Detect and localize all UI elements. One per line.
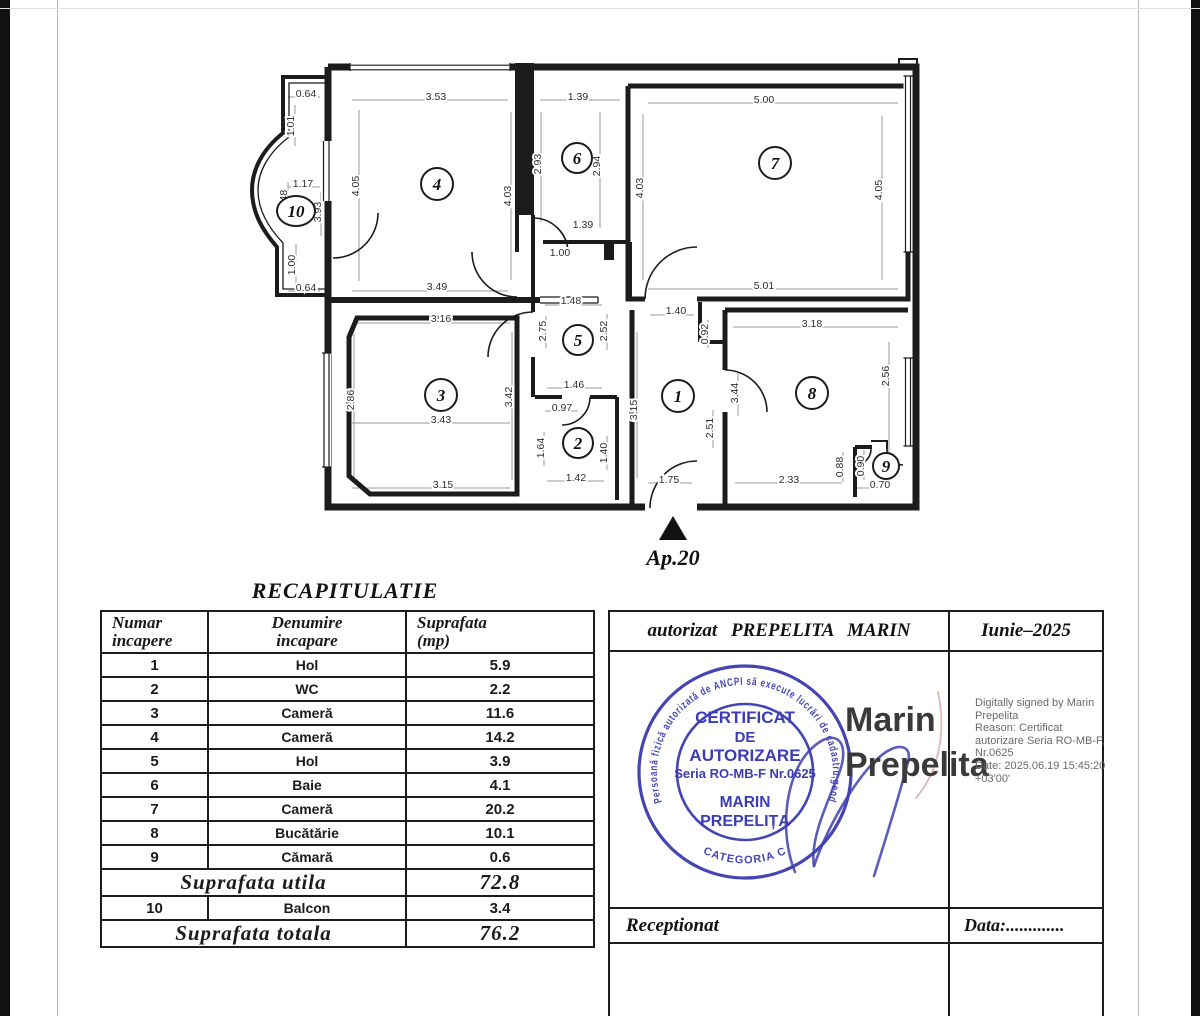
table-cell: 0.6 xyxy=(406,845,594,869)
recap-row: 4Cameră14.2 xyxy=(101,725,594,749)
room9-box xyxy=(871,441,887,449)
table-cell: Hol xyxy=(208,653,406,677)
dimension-label: 2.93 xyxy=(532,154,544,175)
dimension-label: 0.90 xyxy=(855,456,867,477)
date-header: Iunie–2025 xyxy=(950,612,1102,650)
table-cell: 2 xyxy=(101,677,208,701)
summary-value: 76.2 xyxy=(406,920,594,947)
dimension-label: 3.18 xyxy=(802,318,823,330)
recap-table: Numarincapere Denumireincapare Suprafata… xyxy=(100,610,595,948)
floor-plan: 0.641.011.171.483.931.000.643.534.054.03… xyxy=(250,56,925,586)
column-divider xyxy=(948,612,950,1016)
recap-row: 1Hol5.9 xyxy=(101,653,594,677)
suprafata-totala-row: Suprafata totala76.2 xyxy=(101,920,594,947)
table-cell: Bucătărie xyxy=(208,821,406,845)
dimension-label: 0.88 xyxy=(834,457,846,478)
recap-row: 9Cămară0.6 xyxy=(101,845,594,869)
table-cell: 8 xyxy=(101,821,208,845)
dimension-label: 3.49 xyxy=(427,281,448,293)
dimension-label: 2.33 xyxy=(779,474,800,486)
dimension-label: 3.43 xyxy=(431,414,452,426)
dimension-label: 2.86 xyxy=(345,390,357,411)
suprafata-utila-row: Suprafata utila72.8 xyxy=(101,869,594,896)
receptionat-label: Receptionat xyxy=(610,909,964,942)
page-border-top xyxy=(0,8,1200,9)
table-cell: 5 xyxy=(101,749,208,773)
col-header-numar: Numarincapere xyxy=(101,611,208,653)
table-cell: 14.2 xyxy=(406,725,594,749)
table-cell: 4 xyxy=(101,725,208,749)
dimension-label: 1.17 xyxy=(293,178,314,190)
room-number-9: 9 xyxy=(882,457,891,476)
door-arc-room7 xyxy=(645,247,697,299)
room-number-4: 4 xyxy=(432,175,442,194)
dimension-label: 4.03 xyxy=(502,186,514,207)
data-label: Data:............. xyxy=(950,909,1116,942)
recap-table-wrap: Numarincapere Denumireincapare Suprafata… xyxy=(100,610,593,948)
table-cell: Cameră xyxy=(208,725,406,749)
table-cell: 6 xyxy=(101,773,208,797)
window-room3-left xyxy=(322,353,331,467)
table-cell: 3 xyxy=(101,701,208,725)
scan-edge-left xyxy=(0,0,10,1016)
window-room4-top xyxy=(350,63,510,71)
divider xyxy=(610,942,1102,944)
summary-label: Suprafata totala xyxy=(101,920,406,947)
table-cell: Cămară xyxy=(208,845,406,869)
recap-row: 7Cameră20.2 xyxy=(101,797,594,821)
recap-row: 8Bucătărie10.1 xyxy=(101,821,594,845)
dimension-label: 5.00 xyxy=(754,94,775,106)
dimension-label: 1.48 xyxy=(561,295,582,307)
table-cell: 9 xyxy=(101,845,208,869)
door-arc-room4 xyxy=(472,252,517,297)
table-cell: Hol xyxy=(208,749,406,773)
table-cell: 1 xyxy=(101,653,208,677)
table-cell: 7 xyxy=(101,797,208,821)
authorization-panel: autorizat PREPELITA MARIN Iunie–2025 Rec… xyxy=(608,610,1104,1016)
room7-walls xyxy=(628,86,908,299)
table-cell: Cameră xyxy=(208,701,406,725)
window-balcony-wall xyxy=(321,141,332,201)
dimension-label: 1.46 xyxy=(564,379,585,391)
dimension-label: 3.16 xyxy=(431,313,452,325)
dimension-label: 0.70 xyxy=(870,479,891,491)
room-number-6: 6 xyxy=(573,149,582,168)
summary-value: 72.8 xyxy=(406,869,594,896)
door-arc-balcony xyxy=(333,213,378,258)
scan-edge-right xyxy=(1191,0,1200,1016)
dimension-label: 1.00 xyxy=(286,255,298,276)
recap-title: RECAPITULATIE xyxy=(180,578,510,604)
authorized-by-label: autorizat PREPELITA MARIN xyxy=(610,612,948,650)
page-border-right xyxy=(1138,0,1139,1016)
dimension-label: 3.44 xyxy=(729,383,741,404)
digital-signature-details: Digitally signed by Marin Prepelita Reas… xyxy=(975,697,1107,785)
dimension-label: 1.40 xyxy=(598,443,610,464)
table-cell: 11.6 xyxy=(406,701,594,725)
recap-row: 3Cameră11.6 xyxy=(101,701,594,725)
entrance-triangle-icon xyxy=(659,516,687,540)
table-cell: Baie xyxy=(208,773,406,797)
recap-header-row: Numarincapere Denumireincapare Suprafata… xyxy=(101,611,594,653)
dimension-label: 1.75 xyxy=(659,474,680,486)
dimension-label: 2.52 xyxy=(598,321,610,342)
dimension-lines xyxy=(288,97,898,488)
room-number-5: 5 xyxy=(574,331,583,350)
dimension-label: 1.39 xyxy=(573,219,594,231)
dimension-label: 1.64 xyxy=(535,438,547,459)
dimension-label: 2.75 xyxy=(537,321,549,342)
dimension-label: 3.15 xyxy=(628,400,640,421)
table-cell: 10 xyxy=(101,896,208,920)
dimension-label: 4.05 xyxy=(873,180,885,201)
dimension-label: 3.53 xyxy=(426,91,447,103)
dimension-label: 0.97 xyxy=(552,402,573,414)
table-cell: 3.4 xyxy=(406,896,594,920)
table-cell: Cameră xyxy=(208,797,406,821)
dimension-label: 3.42 xyxy=(503,387,515,408)
recap-row: 6Baie4.1 xyxy=(101,773,594,797)
summary-label: Suprafata utila xyxy=(101,869,406,896)
dimension-label: 5.01 xyxy=(754,280,775,292)
divider xyxy=(610,650,1102,652)
dimension-label: 0.92 xyxy=(699,324,711,345)
window-room8-right xyxy=(904,358,913,446)
page-border-left xyxy=(57,0,58,1016)
table-cell: 2.2 xyxy=(406,677,594,701)
col-header-denumire: Denumireincapare xyxy=(208,611,406,653)
window-room7-right xyxy=(904,76,913,252)
dimension-label: 0.64 xyxy=(296,88,317,100)
dimension-label: 0.64 xyxy=(296,282,317,294)
recap-row: 5Hol3.9 xyxy=(101,749,594,773)
dimension-label: 4.05 xyxy=(350,176,362,197)
dimension-label: 1.42 xyxy=(566,472,587,484)
outer-walls xyxy=(328,67,916,507)
table-cell: 10.1 xyxy=(406,821,594,845)
apartment-label: Ap.20 xyxy=(644,545,699,570)
dimension-label: 1.40 xyxy=(666,305,687,317)
dimension-label: 3.15 xyxy=(433,479,454,491)
table-cell: 4.1 xyxy=(406,773,594,797)
scanned-document-page: 0.641.011.171.483.931.000.643.534.054.03… xyxy=(0,0,1200,1016)
dimension-label: 1.01 xyxy=(285,116,297,137)
table-cell: 20.2 xyxy=(406,797,594,821)
dimension-label: 1.00 xyxy=(550,247,571,259)
room-number-8: 8 xyxy=(808,384,817,403)
recap-body: Numarincapere Denumireincapare Suprafata… xyxy=(101,611,594,947)
col-header-suprafata: Suprafata(mp) xyxy=(406,611,594,653)
dimension-label: 2.51 xyxy=(704,418,716,439)
room-number-2: 2 xyxy=(573,434,583,453)
table-cell: 3.9 xyxy=(406,749,594,773)
table-cell: WC xyxy=(208,677,406,701)
recap-row: 10Balcon3.4 xyxy=(101,896,594,920)
room-number-10: 10 xyxy=(288,202,306,221)
dimension-label: 1.39 xyxy=(568,91,589,103)
dimension-label: 2.56 xyxy=(880,366,892,387)
room-number-1: 1 xyxy=(674,387,683,406)
recap-row: 2WC2.2 xyxy=(101,677,594,701)
wall-nib-room6 xyxy=(604,242,614,260)
wall-spine-upper xyxy=(515,63,534,215)
table-cell: 5.9 xyxy=(406,653,594,677)
room-number-3: 3 xyxy=(436,386,446,405)
table-cell: Balcon xyxy=(208,896,406,920)
dimension-label: 4.03 xyxy=(634,178,646,199)
